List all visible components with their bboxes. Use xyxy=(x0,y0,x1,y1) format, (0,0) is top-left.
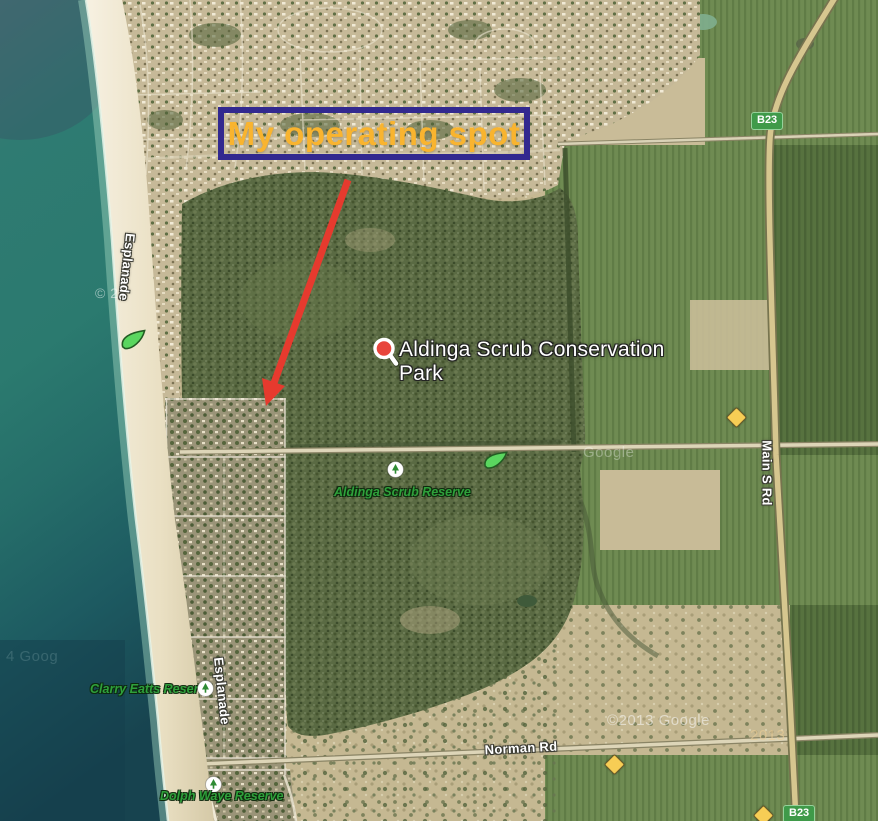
reserve-label-aldinga-scrub[interactable]: Aldinga Scrub Reserve xyxy=(334,485,471,499)
tree-icon[interactable] xyxy=(197,680,214,697)
watermark-google-faint: Google xyxy=(583,444,634,461)
satellite-map[interactable]: © 20 Google 4 Goog ©2013 Google 2013 Esp… xyxy=(0,0,878,821)
poi-label[interactable]: Aldinga Scrub Conservation Park xyxy=(399,338,691,385)
watermark-left-partial: 4 Goog xyxy=(6,648,58,665)
reserve-label-dolph-waye[interactable]: Dolph Waye Reserve xyxy=(160,789,283,803)
leaf-icon[interactable] xyxy=(481,449,513,474)
annotation-label: My operating spot xyxy=(228,115,521,153)
search-marker-icon[interactable] xyxy=(371,336,401,370)
annotation-box: My operating spot xyxy=(218,107,530,160)
leaf-icon[interactable] xyxy=(117,327,152,355)
road-label-main-s-rd: Main S Rd xyxy=(760,440,775,506)
reserve-label-clarry-eatts[interactable]: Clarry Eatts Reserve xyxy=(90,682,212,696)
tree-icon[interactable] xyxy=(387,461,404,478)
route-badge-b23-south: B23 xyxy=(783,805,815,821)
watermark-year: 2013 xyxy=(750,727,785,744)
route-badge-b23-north: B23 xyxy=(751,112,783,130)
watermark-google-copyright: ©2013 Google xyxy=(607,712,710,729)
